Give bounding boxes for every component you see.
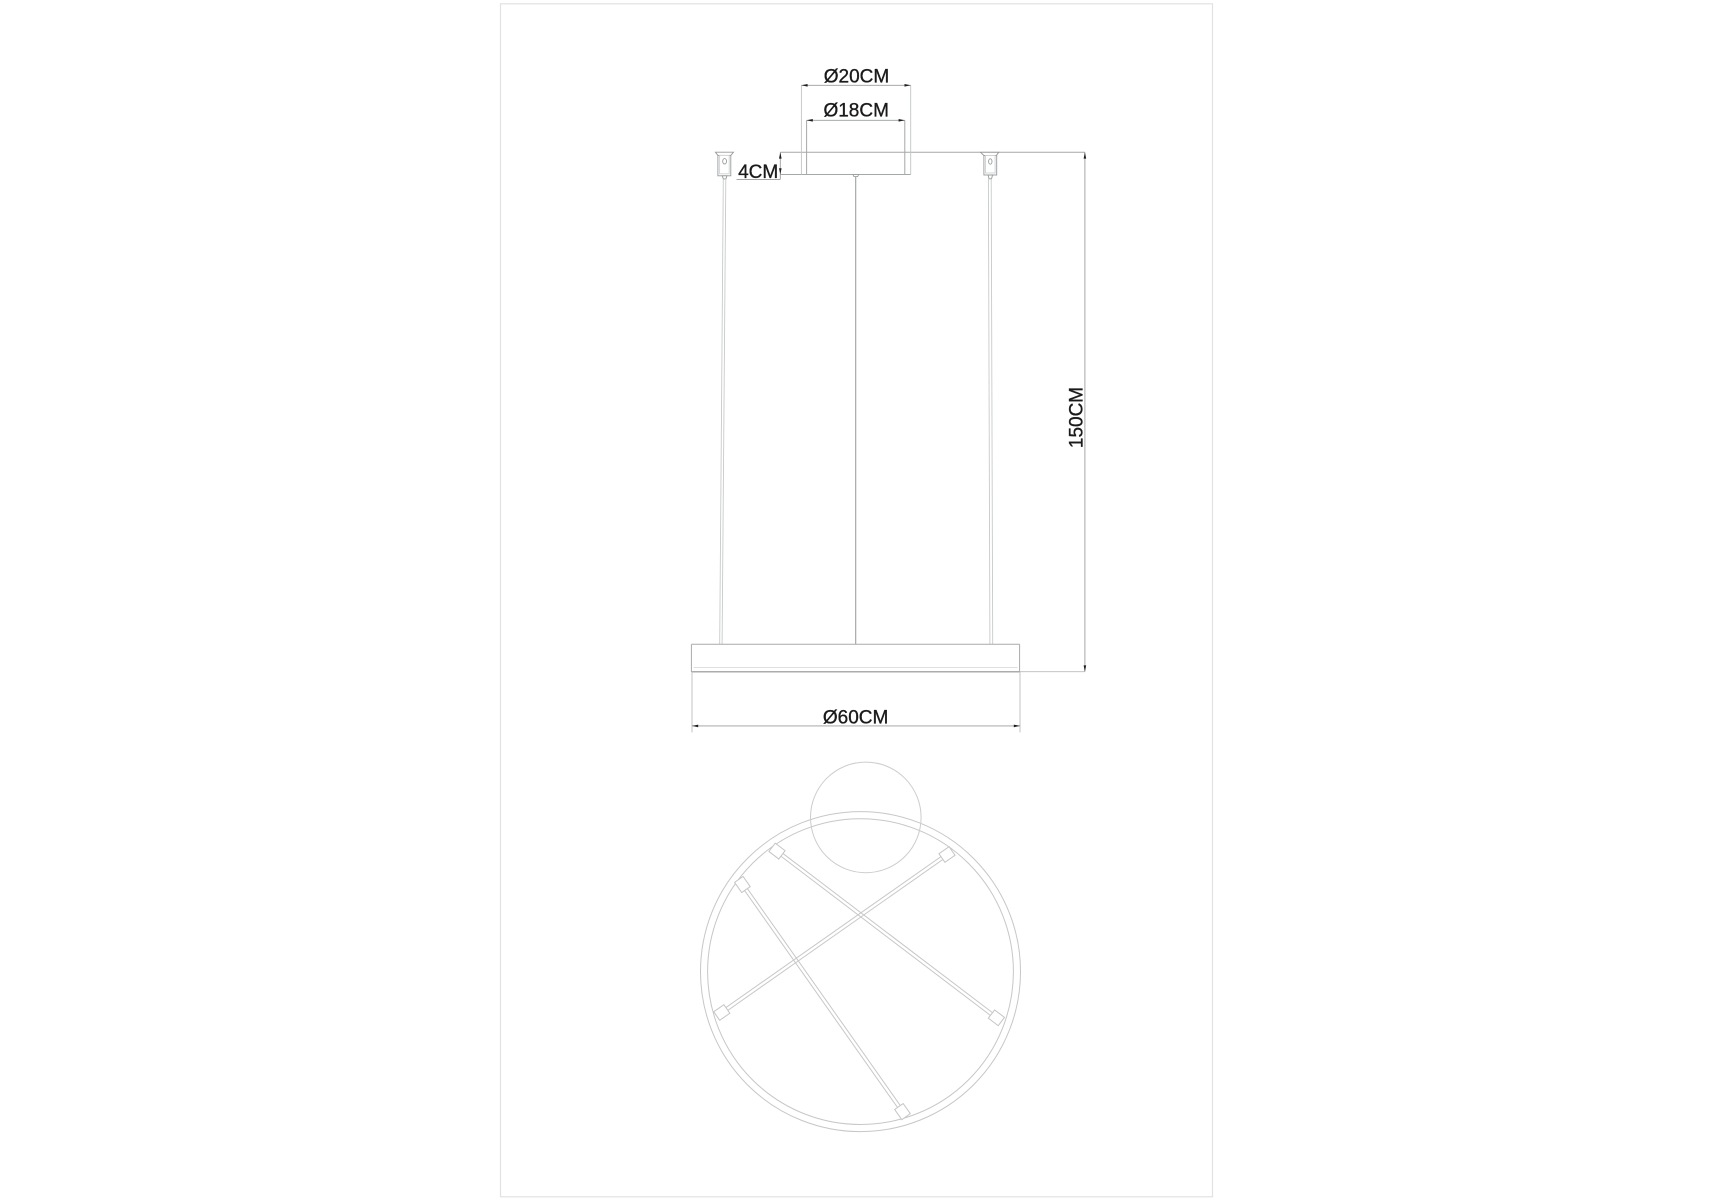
svg-text:Ø18CM: Ø18CM <box>823 101 888 122</box>
svg-text:Ø60CM: Ø60CM <box>823 707 888 728</box>
svg-text:Ø20CM: Ø20CM <box>824 67 889 88</box>
svg-text:150CM: 150CM <box>1067 387 1088 448</box>
